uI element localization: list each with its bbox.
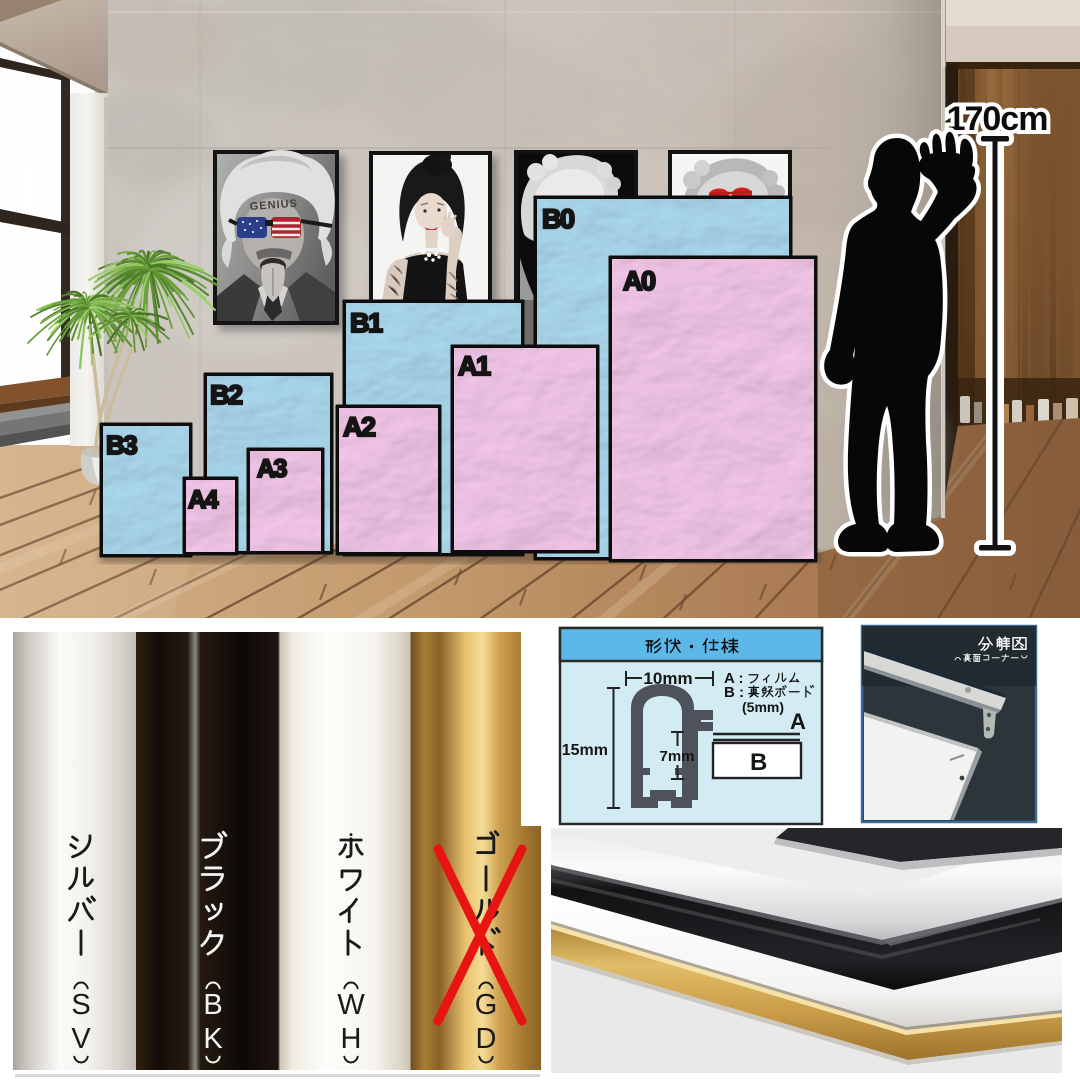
svg-text:A1: A1 bbox=[458, 351, 491, 381]
svg-text:A4: A4 bbox=[188, 486, 219, 514]
svg-text:A0: A0 bbox=[623, 266, 655, 296]
svg-text:A3: A3 bbox=[257, 455, 287, 483]
svg-text:B: B bbox=[203, 989, 222, 1021]
svg-text:B3: B3 bbox=[106, 430, 137, 460]
svg-text:10mm: 10mm bbox=[643, 669, 692, 688]
svg-text:15mm: 15mm bbox=[562, 742, 608, 759]
svg-text:170cm: 170cm bbox=[947, 100, 1048, 138]
svg-text:B2: B2 bbox=[210, 380, 242, 410]
svg-text:S: S bbox=[71, 989, 90, 1021]
svg-text:K: K bbox=[203, 1023, 223, 1055]
svg-text:V: V bbox=[71, 1023, 91, 1055]
svg-text:G: G bbox=[475, 989, 498, 1021]
svg-text:D: D bbox=[476, 1023, 497, 1055]
svg-text:B: B bbox=[750, 749, 767, 776]
svg-text:W: W bbox=[337, 989, 365, 1021]
svg-text:7mm: 7mm bbox=[659, 748, 694, 765]
svg-text:A: A bbox=[790, 709, 806, 734]
svg-text:B1: B1 bbox=[350, 308, 383, 338]
svg-text:B :: B : bbox=[724, 684, 744, 701]
svg-text:(5mm): (5mm) bbox=[742, 699, 784, 715]
svg-text:A2: A2 bbox=[343, 412, 375, 442]
svg-text:H: H bbox=[341, 1023, 362, 1055]
svg-text:B0: B0 bbox=[542, 204, 574, 234]
